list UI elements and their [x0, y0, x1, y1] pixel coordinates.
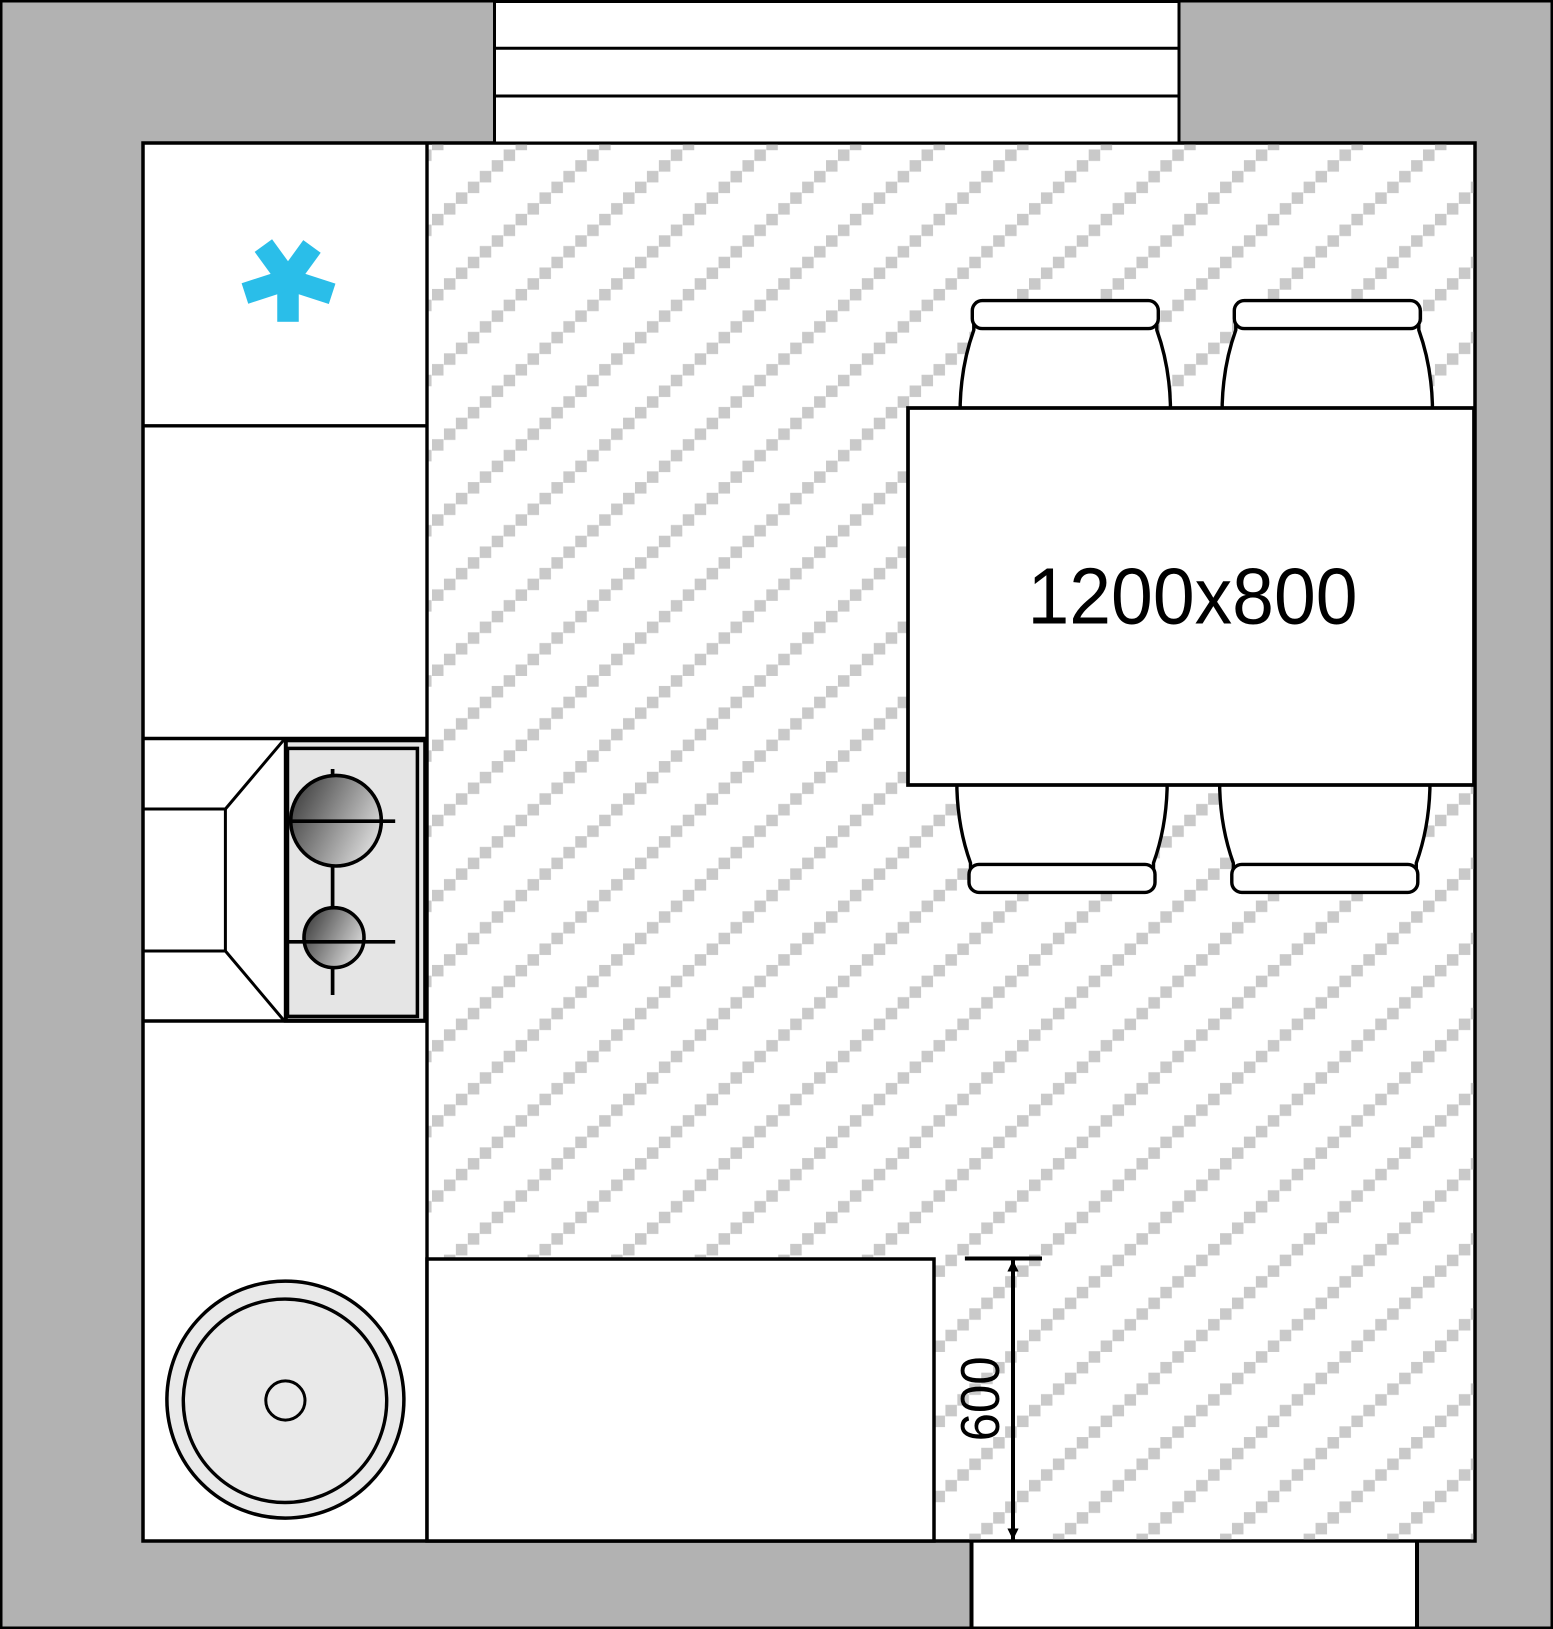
svg-text:1200x800: 1200x800 [1028, 552, 1358, 641]
svg-text:600: 600 [949, 1356, 1011, 1441]
